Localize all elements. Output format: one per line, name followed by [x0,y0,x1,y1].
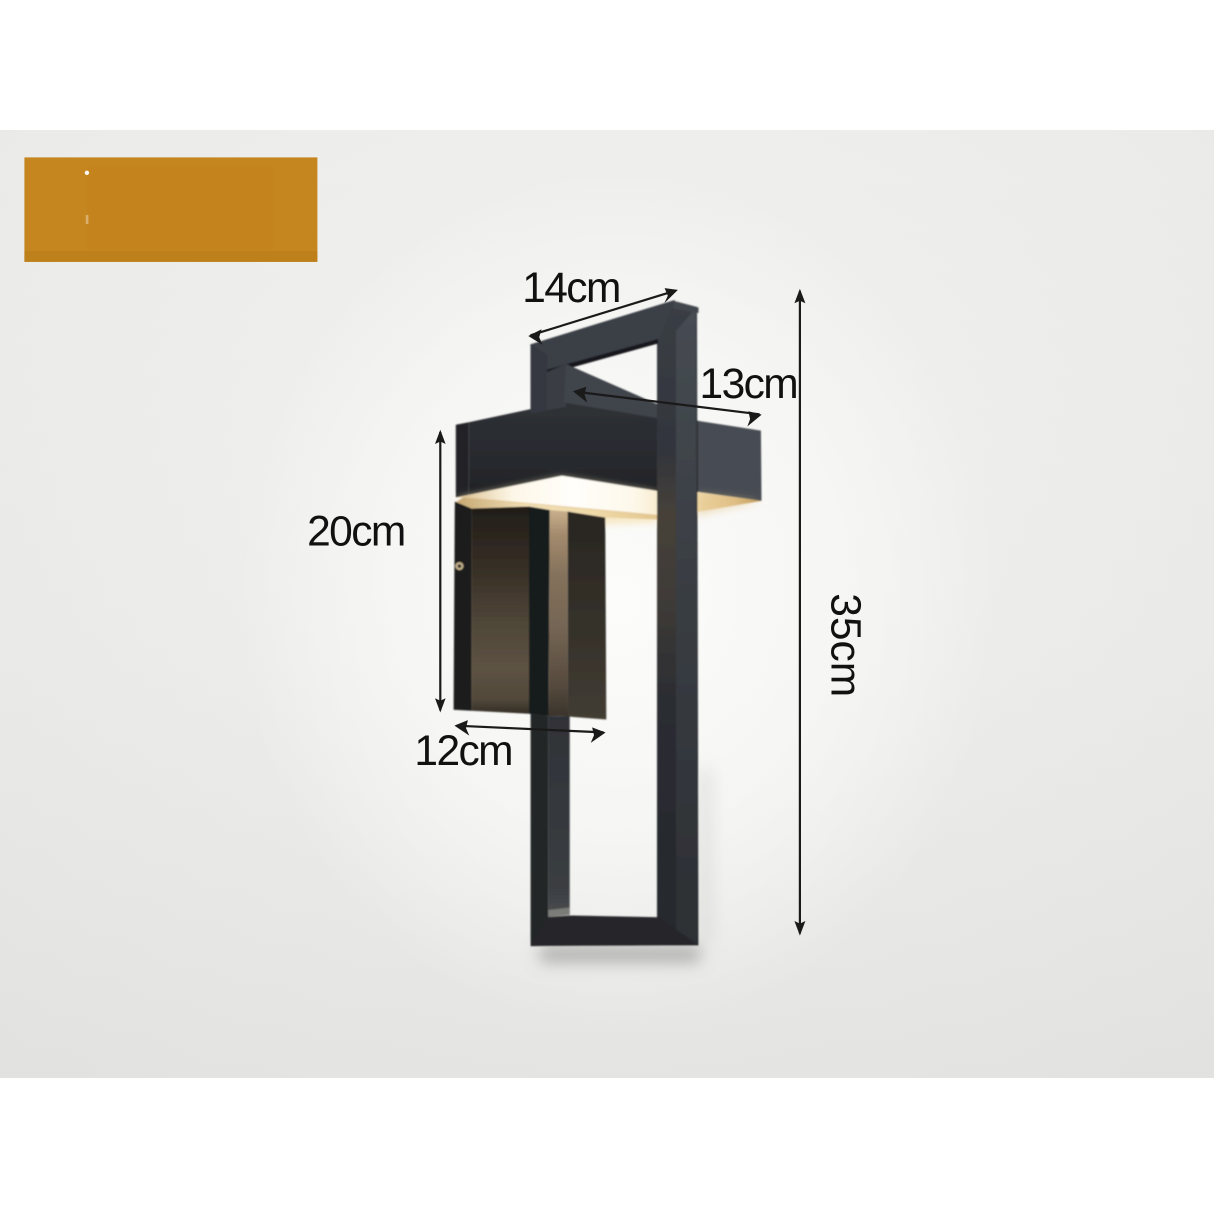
svg-text:13cm: 13cm [700,361,798,408]
svg-text:20cm: 20cm [307,509,405,556]
svg-text:12cm: 12cm [414,728,512,775]
svg-text:14cm: 14cm [522,265,620,312]
svg-text:35cm: 35cm [822,593,869,697]
